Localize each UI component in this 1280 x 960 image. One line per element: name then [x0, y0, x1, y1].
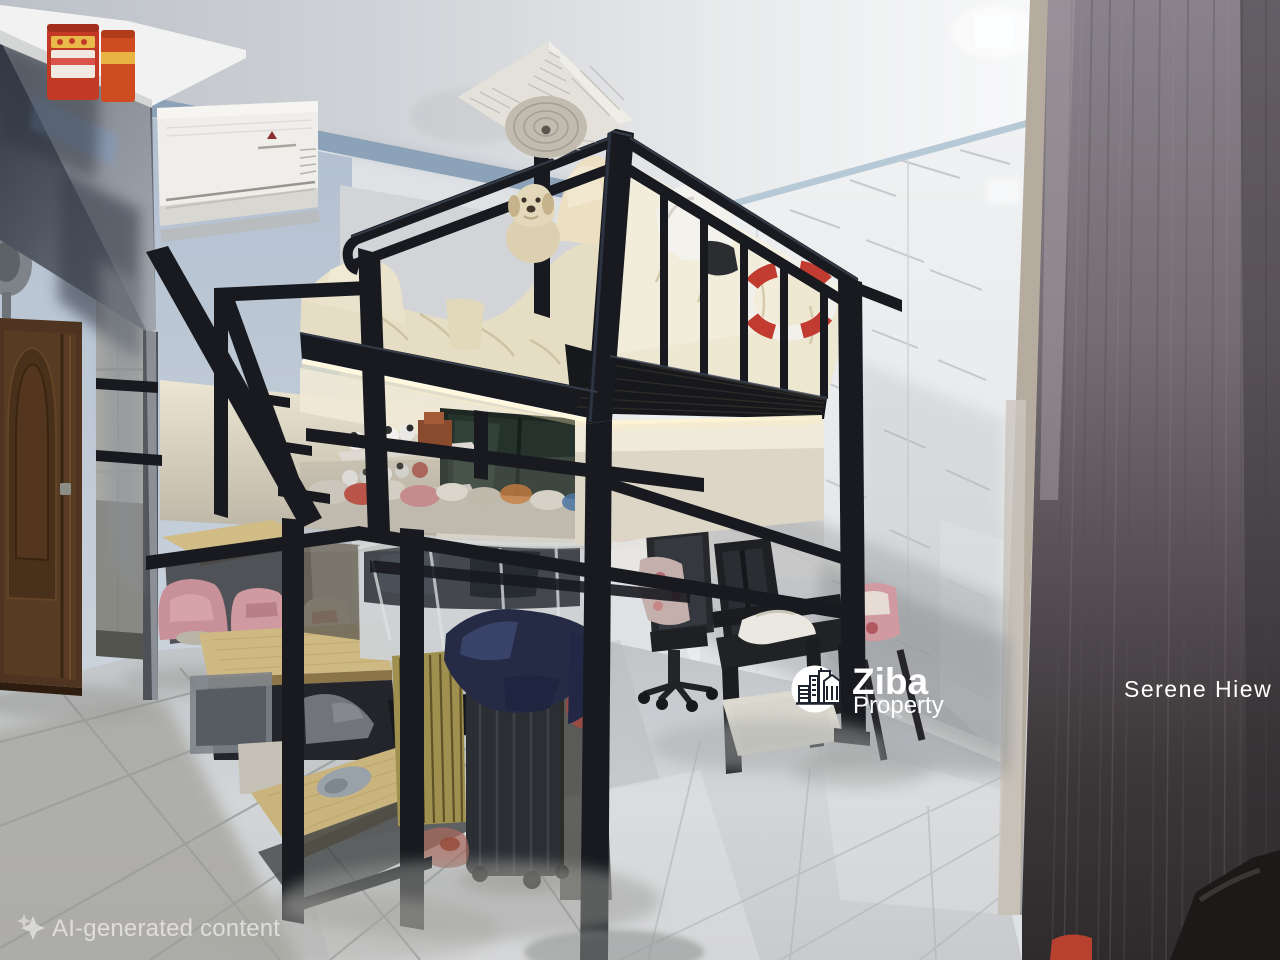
svg-text:AI-generated content: AI-generated content	[52, 915, 280, 942]
svg-text:Property: Property	[853, 692, 944, 719]
svg-text:Serene Hiew: Serene Hiew	[1124, 676, 1272, 702]
